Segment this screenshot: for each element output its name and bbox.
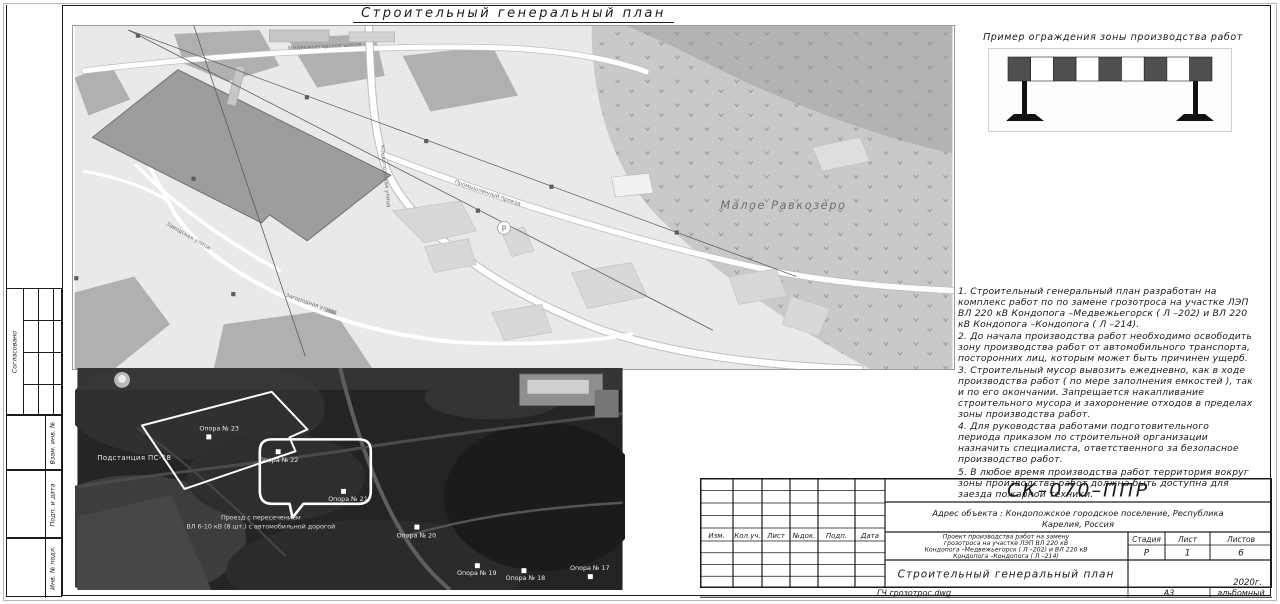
rev-col-data: Дата (860, 532, 879, 540)
note-2: 2. До начала производства работ необходи… (958, 331, 1254, 364)
note-3: 3. Строительный мусор вывозить ежедневно… (958, 365, 1254, 420)
sheets-value: 6 (1238, 549, 1244, 559)
fence-checker-bar (1008, 57, 1212, 81)
title-block: СК–070–ППР Адрес объекта : Кондопожское … (700, 478, 1272, 602)
substation-label: Подстанция ПС-18 (97, 454, 171, 462)
drawing-sheet: Строительный генеральный план (0, 0, 1280, 604)
site-plan-map: Р Малое Равкозеро Медвежьегорское шоссе … (72, 25, 955, 370)
parking-icon: Р (498, 221, 511, 234)
fence-example-caption: Пример ограждения зоны производства рабо… (960, 32, 1266, 43)
project-line4: Кондопога –Кондопога ( Л –214) (953, 553, 1059, 560)
tower-label-18: Опора № 18 (506, 575, 546, 582)
footer-file: ГЧ грозотрос.dwg (877, 589, 951, 598)
fence-svg (988, 48, 1232, 132)
fence-example-drawing (988, 48, 1232, 136)
site-plan-map-svg: Р Малое Равкозеро Медвежьегорское шоссе … (73, 26, 954, 369)
tower-label-23: Опора № 23 (199, 425, 239, 432)
inv-podl-label: Инв. № подл. (50, 546, 57, 589)
tower-label-20: Опора № 20 (397, 532, 437, 539)
note-1: 1. Строительный генеральный план разрабо… (958, 286, 1254, 330)
tower-label-17: Опора № 17 (570, 565, 610, 572)
side-stamp-podp-data: Подп. и дата (6, 470, 62, 538)
stage-label: Стадия (1132, 535, 1161, 544)
rev-col-podp: Подп. (826, 532, 847, 540)
podp-data-label: Подп. и дата (50, 484, 57, 527)
note-4: 4. Для руководства работами подготовител… (958, 421, 1254, 465)
footer-orientation: альбомный (1217, 589, 1264, 598)
rev-col-koluch: Кол.уч. (734, 532, 760, 540)
general-notes: 1. Строительный генеральный план разрабо… (958, 286, 1254, 501)
page-title: Строительный генеральный план (72, 6, 955, 21)
satellite-image: Подстанция ПС-18 Опора № 23 Опора № 22 О… (75, 368, 625, 590)
rev-col-list: Лист (766, 532, 786, 540)
sheet-value: 1 (1185, 549, 1191, 559)
side-stamp-inv-podl: Инв. № подл. (6, 538, 62, 597)
tower-label-22: Опора № 22 (259, 457, 299, 464)
doc-code: СК–070–ППР (1007, 480, 1149, 502)
tower-label-19: Опора № 19 (457, 570, 497, 577)
page-title-text: Строительный генеральный план (353, 6, 674, 23)
svg-text:Р: Р (502, 224, 507, 233)
address-line2: Карелия, Россия (1042, 519, 1114, 529)
sheet-label: Лист (1177, 535, 1198, 544)
vzam-inv-label: Взам. инв. № (50, 422, 57, 465)
drawing-title: Строительный генеральный план (898, 569, 1115, 581)
side-stamp-approved: Согласовано (6, 288, 62, 415)
stage-value: Р (1144, 549, 1150, 559)
satellite-svg: Подстанция ПС-18 Опора № 23 Опора № 22 О… (75, 368, 625, 590)
title-block-svg: СК–070–ППР Адрес объекта : Кондопожское … (700, 478, 1272, 598)
lake-label: Малое Равкозеро (720, 198, 846, 212)
address-line1: Адрес объекта : Кондопожское городское п… (931, 508, 1223, 518)
side-stamp-vzam-inv: Взам. инв. № (6, 415, 62, 470)
title-block-texts: СК–070–ППР Адрес объекта : Кондопожское … (708, 480, 1264, 598)
tower-label-21: Опора № 21 (328, 496, 368, 503)
crossing-note-line2: ВЛ 6-10 кВ (8 шт.) с автомобильной дорог… (186, 523, 335, 531)
crossing-note-line1: Проезд с пересечением (221, 515, 301, 522)
footer-format: А3 (1163, 589, 1175, 598)
year-label: 2020г. (1233, 578, 1262, 588)
rev-col-izm: Изм. (708, 532, 724, 540)
rev-col-ndok: №док. (792, 532, 816, 540)
sheets-label: Листов (1226, 535, 1255, 544)
approved-label: Согласовано (12, 331, 19, 373)
